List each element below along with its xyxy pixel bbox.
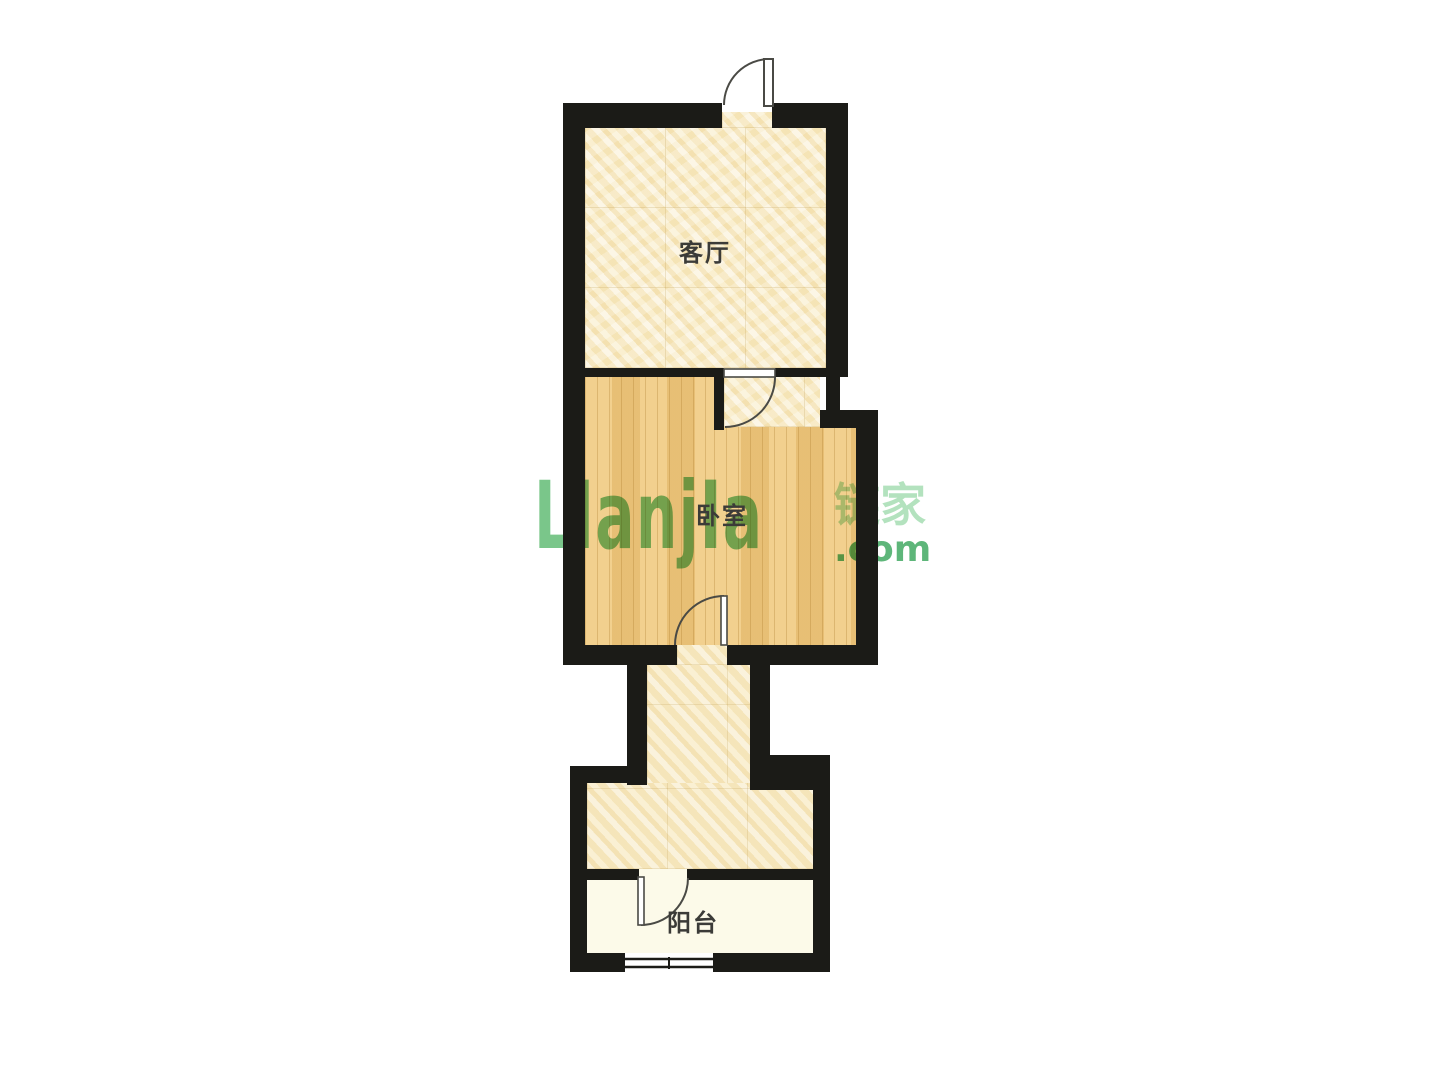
- wall-bedroom-right: [856, 410, 878, 665]
- balcony-door-threshold: [639, 869, 687, 880]
- wall-living-right: [826, 103, 848, 377]
- wall-alcove-left: [714, 368, 724, 430]
- wall-balcony-bottom-right: [713, 953, 830, 972]
- wall-living-bottom-right: [775, 368, 848, 377]
- wall-living-bottom-left: [563, 368, 724, 377]
- bedroom-label: 卧室: [672, 496, 772, 531]
- bedroom-door-threshold: [677, 645, 727, 665]
- wall-balcony-bottom-left: [570, 953, 625, 972]
- wall-corridor-right: [750, 645, 770, 790]
- balcony-window-icon: [625, 953, 713, 972]
- wall-bedroom-left: [563, 377, 585, 665]
- floorplan-canvas: LIanjIa 链家 .com: [0, 0, 1440, 1080]
- entry-door-threshold: [722, 112, 772, 128]
- hallway-floor: [587, 783, 813, 869]
- entry-door-icon: [724, 59, 773, 106]
- corridor-floor: [647, 665, 750, 785]
- balcony-label: 阳台: [643, 903, 743, 938]
- wall-living-left: [563, 103, 585, 377]
- wall-right-outer: [813, 755, 830, 972]
- wall-corridor-left: [627, 645, 647, 785]
- wall-balcony-top-left: [570, 869, 639, 880]
- wall-living-top-left: [563, 103, 722, 128]
- entry-door-leaf: [764, 59, 773, 106]
- bedroom-floor-right: [714, 427, 856, 645]
- entry-door-arc: [724, 59, 770, 105]
- wall-balcony-top-right: [687, 869, 813, 880]
- window-opening: [625, 953, 713, 972]
- wall-bedroom-bottom-left: [563, 645, 677, 665]
- wall-step-vertical: [826, 377, 840, 413]
- living-room-label: 客厅: [655, 233, 755, 268]
